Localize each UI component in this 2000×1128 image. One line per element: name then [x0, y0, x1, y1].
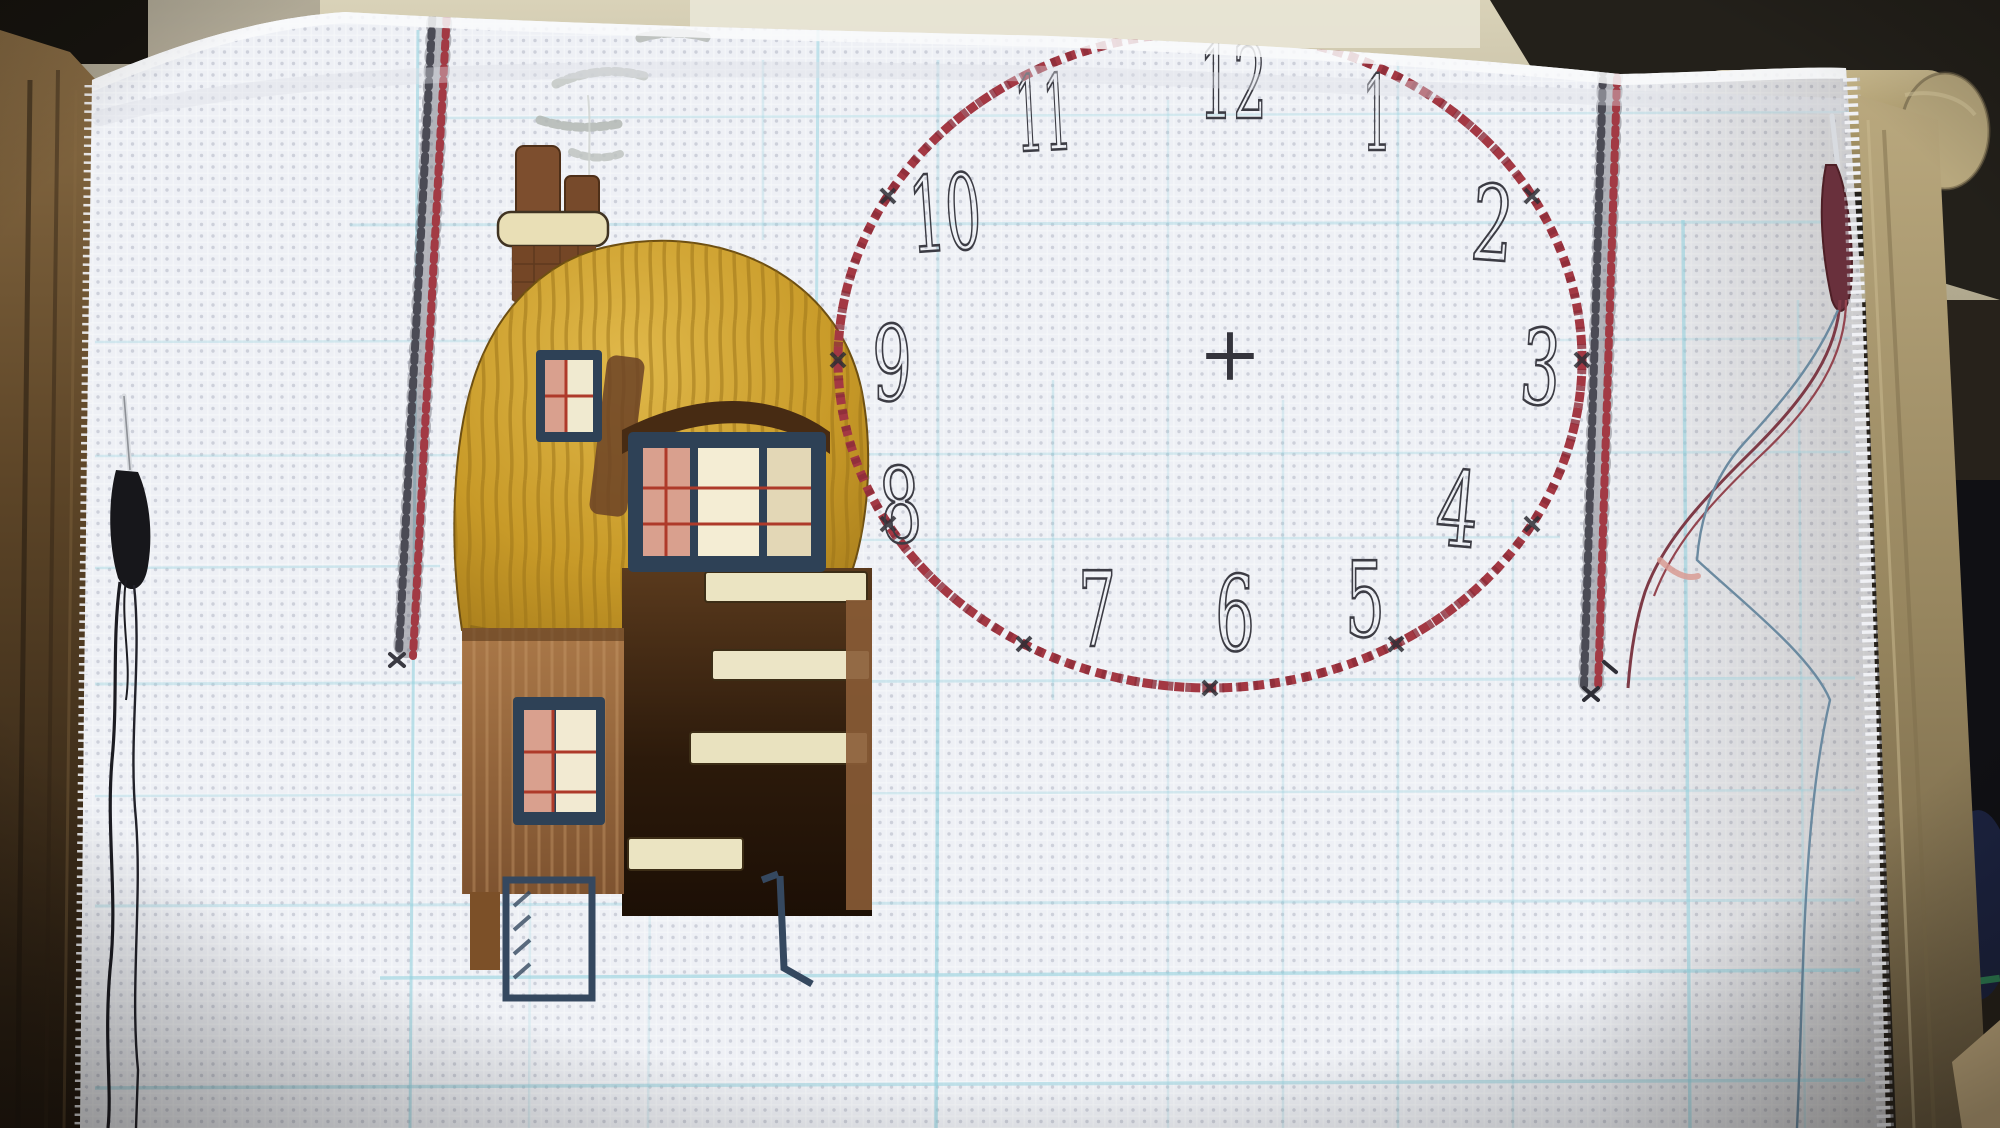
photo-vignette [0, 0, 2000, 1128]
photo-canvas: 12 11 1 10 2 9 3 8 4 7 5 6 + [0, 0, 2000, 1128]
cross-stitch-photo: 12 11 1 10 2 9 3 8 4 7 5 6 + [0, 0, 2000, 1128]
